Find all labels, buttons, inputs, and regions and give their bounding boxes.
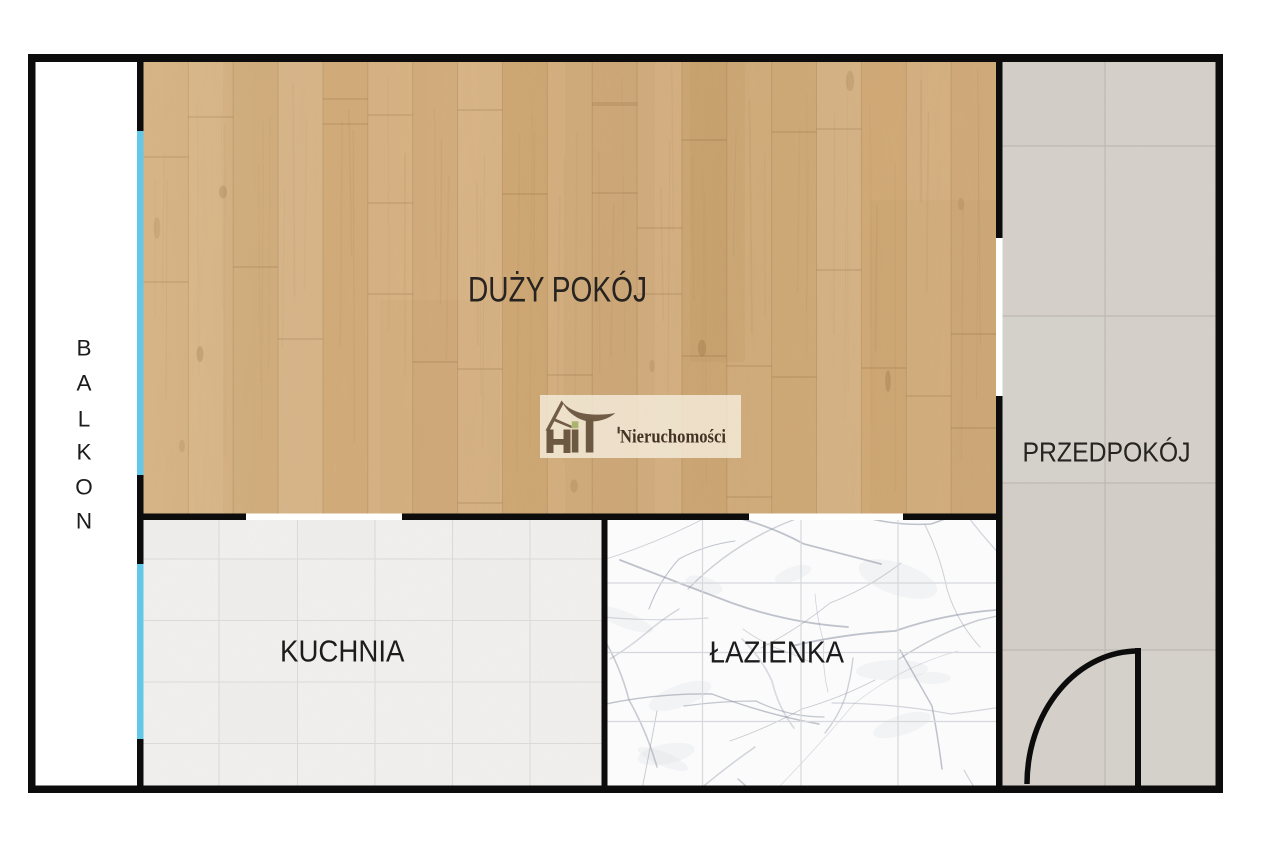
svg-text:Nieruchomości: Nieruchomości <box>620 427 726 448</box>
svg-text:KUCHNIA: KUCHNIA <box>280 635 405 669</box>
svg-text:ŁAZIENKA: ŁAZIENKA <box>710 635 845 669</box>
svg-text:PRZEDPOKÓJ: PRZEDPOKÓJ <box>1023 437 1191 468</box>
svg-text:DUŻY POKÓJ: DUŻY POKÓJ <box>468 271 647 310</box>
